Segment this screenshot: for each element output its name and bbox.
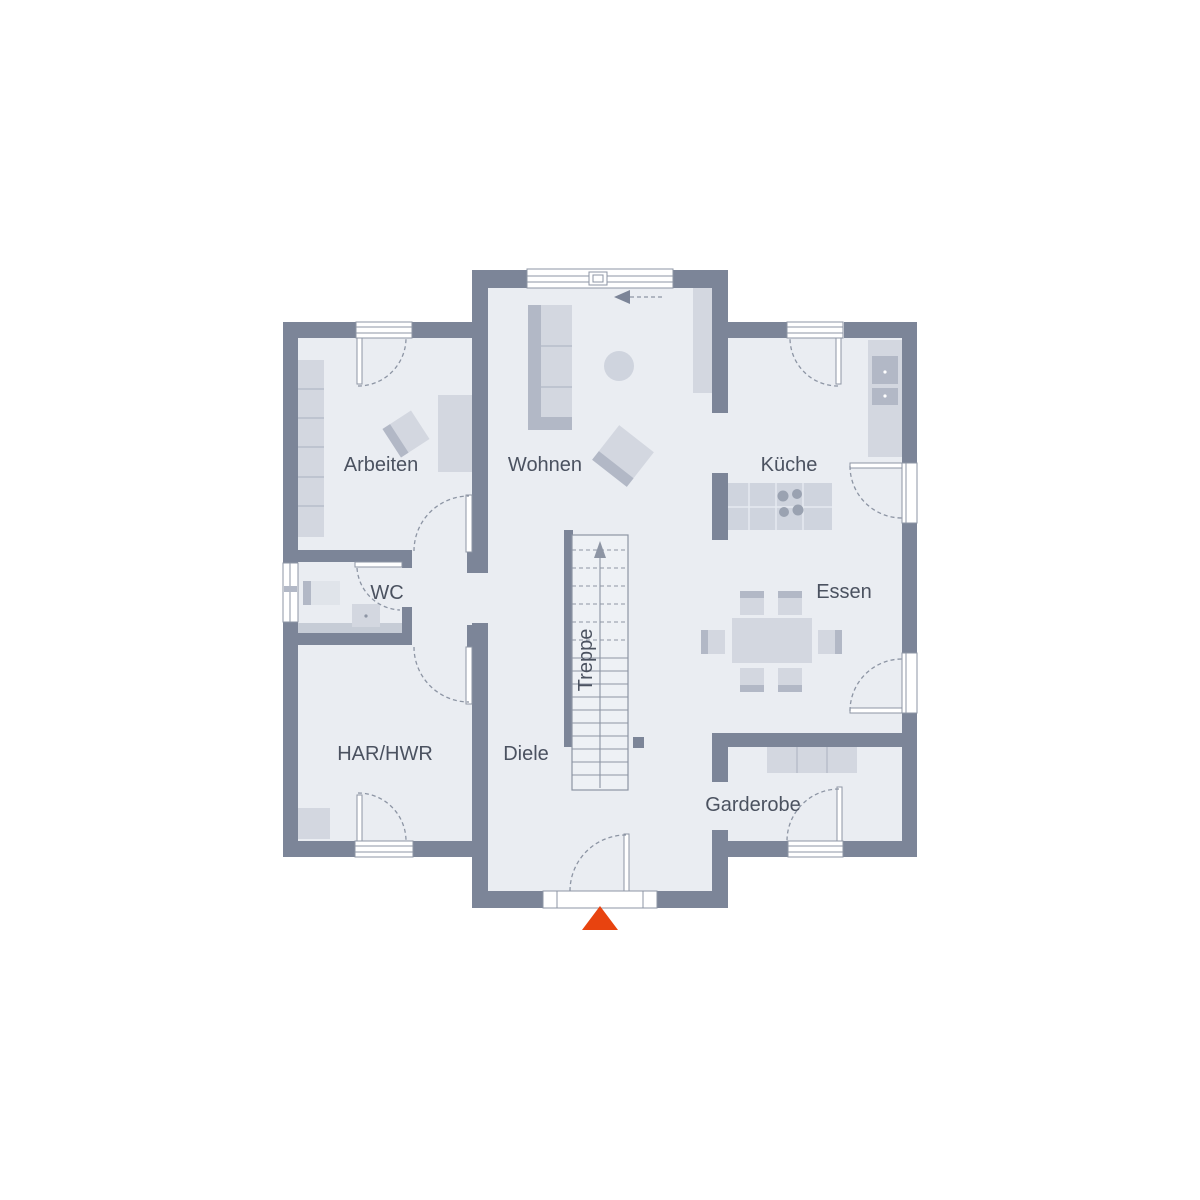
wc-ledge	[298, 623, 402, 633]
essen-side-door-window	[902, 653, 917, 713]
sofa-armrest	[541, 417, 572, 430]
kueche-window	[787, 322, 843, 338]
bookshelf	[297, 360, 324, 537]
garderobe-door-window	[788, 841, 843, 857]
room-label-wc: WC	[370, 582, 403, 604]
room-label-diele: Diele	[503, 743, 549, 765]
dining-chair-back	[778, 685, 802, 692]
room-label-garderobe: Garderobe	[705, 794, 801, 816]
sideboard	[693, 288, 712, 393]
entrance-door-leaf	[624, 834, 629, 891]
floorplan-page: Arbeiten Wohnen Küche WC Essen HAR/HWR D…	[0, 0, 1200, 1200]
microwave-knob	[883, 394, 886, 397]
dining-chair-back	[740, 685, 764, 692]
dining-chair-back	[740, 591, 764, 598]
toilet-drain	[364, 614, 367, 617]
wc-door-leaf	[355, 562, 402, 567]
burner	[778, 491, 789, 502]
har-terrace-door-leaf	[357, 795, 362, 841]
sofa	[528, 305, 572, 430]
dining-chair-back	[778, 591, 802, 598]
dining-chair-back	[701, 630, 708, 654]
oven	[872, 356, 898, 384]
burner	[793, 505, 804, 516]
floorplan-canvas: Arbeiten Wohnen Küche WC Essen HAR/HWR D…	[0, 0, 1200, 1200]
round-side-table	[604, 351, 634, 381]
har-terrace-window	[355, 841, 413, 857]
arbeiten-terrace-door-leaf	[357, 338, 362, 384]
room-label-kueche: Küche	[761, 454, 818, 476]
kueche-side-door-window	[902, 463, 917, 523]
burner	[779, 507, 789, 517]
wardrobe	[767, 747, 857, 773]
sofa-back	[528, 305, 541, 430]
sofa-seat	[541, 305, 572, 417]
garderobe-door-leaf	[837, 787, 842, 841]
arbeiten-window	[356, 322, 412, 338]
kueche-side-door-leaf	[850, 463, 902, 468]
sink-counter	[303, 581, 311, 605]
wc-window-mullion	[284, 586, 297, 592]
har-room-door-leaf	[466, 647, 472, 704]
arbeiten-room-door-leaf	[466, 495, 472, 552]
burner	[792, 489, 802, 499]
entrance-marker-icon	[582, 906, 618, 930]
kueche-terrace-door-leaf	[836, 338, 841, 384]
room-label-arbeiten: Arbeiten	[344, 454, 419, 476]
sink	[311, 581, 340, 605]
room-label-treppe: Treppe	[575, 629, 597, 692]
room-label-essen: Essen	[816, 581, 872, 603]
dining-table	[732, 618, 812, 663]
oven-knob	[883, 370, 886, 373]
room-label-har-hwr: HAR/HWR	[337, 743, 433, 765]
room-label-wohnen: Wohnen	[508, 454, 582, 476]
dining-chair-back	[835, 630, 842, 654]
entrance-door-band	[543, 891, 657, 908]
washing-machine	[295, 808, 330, 839]
wohnen-window-post-inner	[593, 275, 603, 282]
essen-side-door-leaf	[850, 708, 902, 713]
